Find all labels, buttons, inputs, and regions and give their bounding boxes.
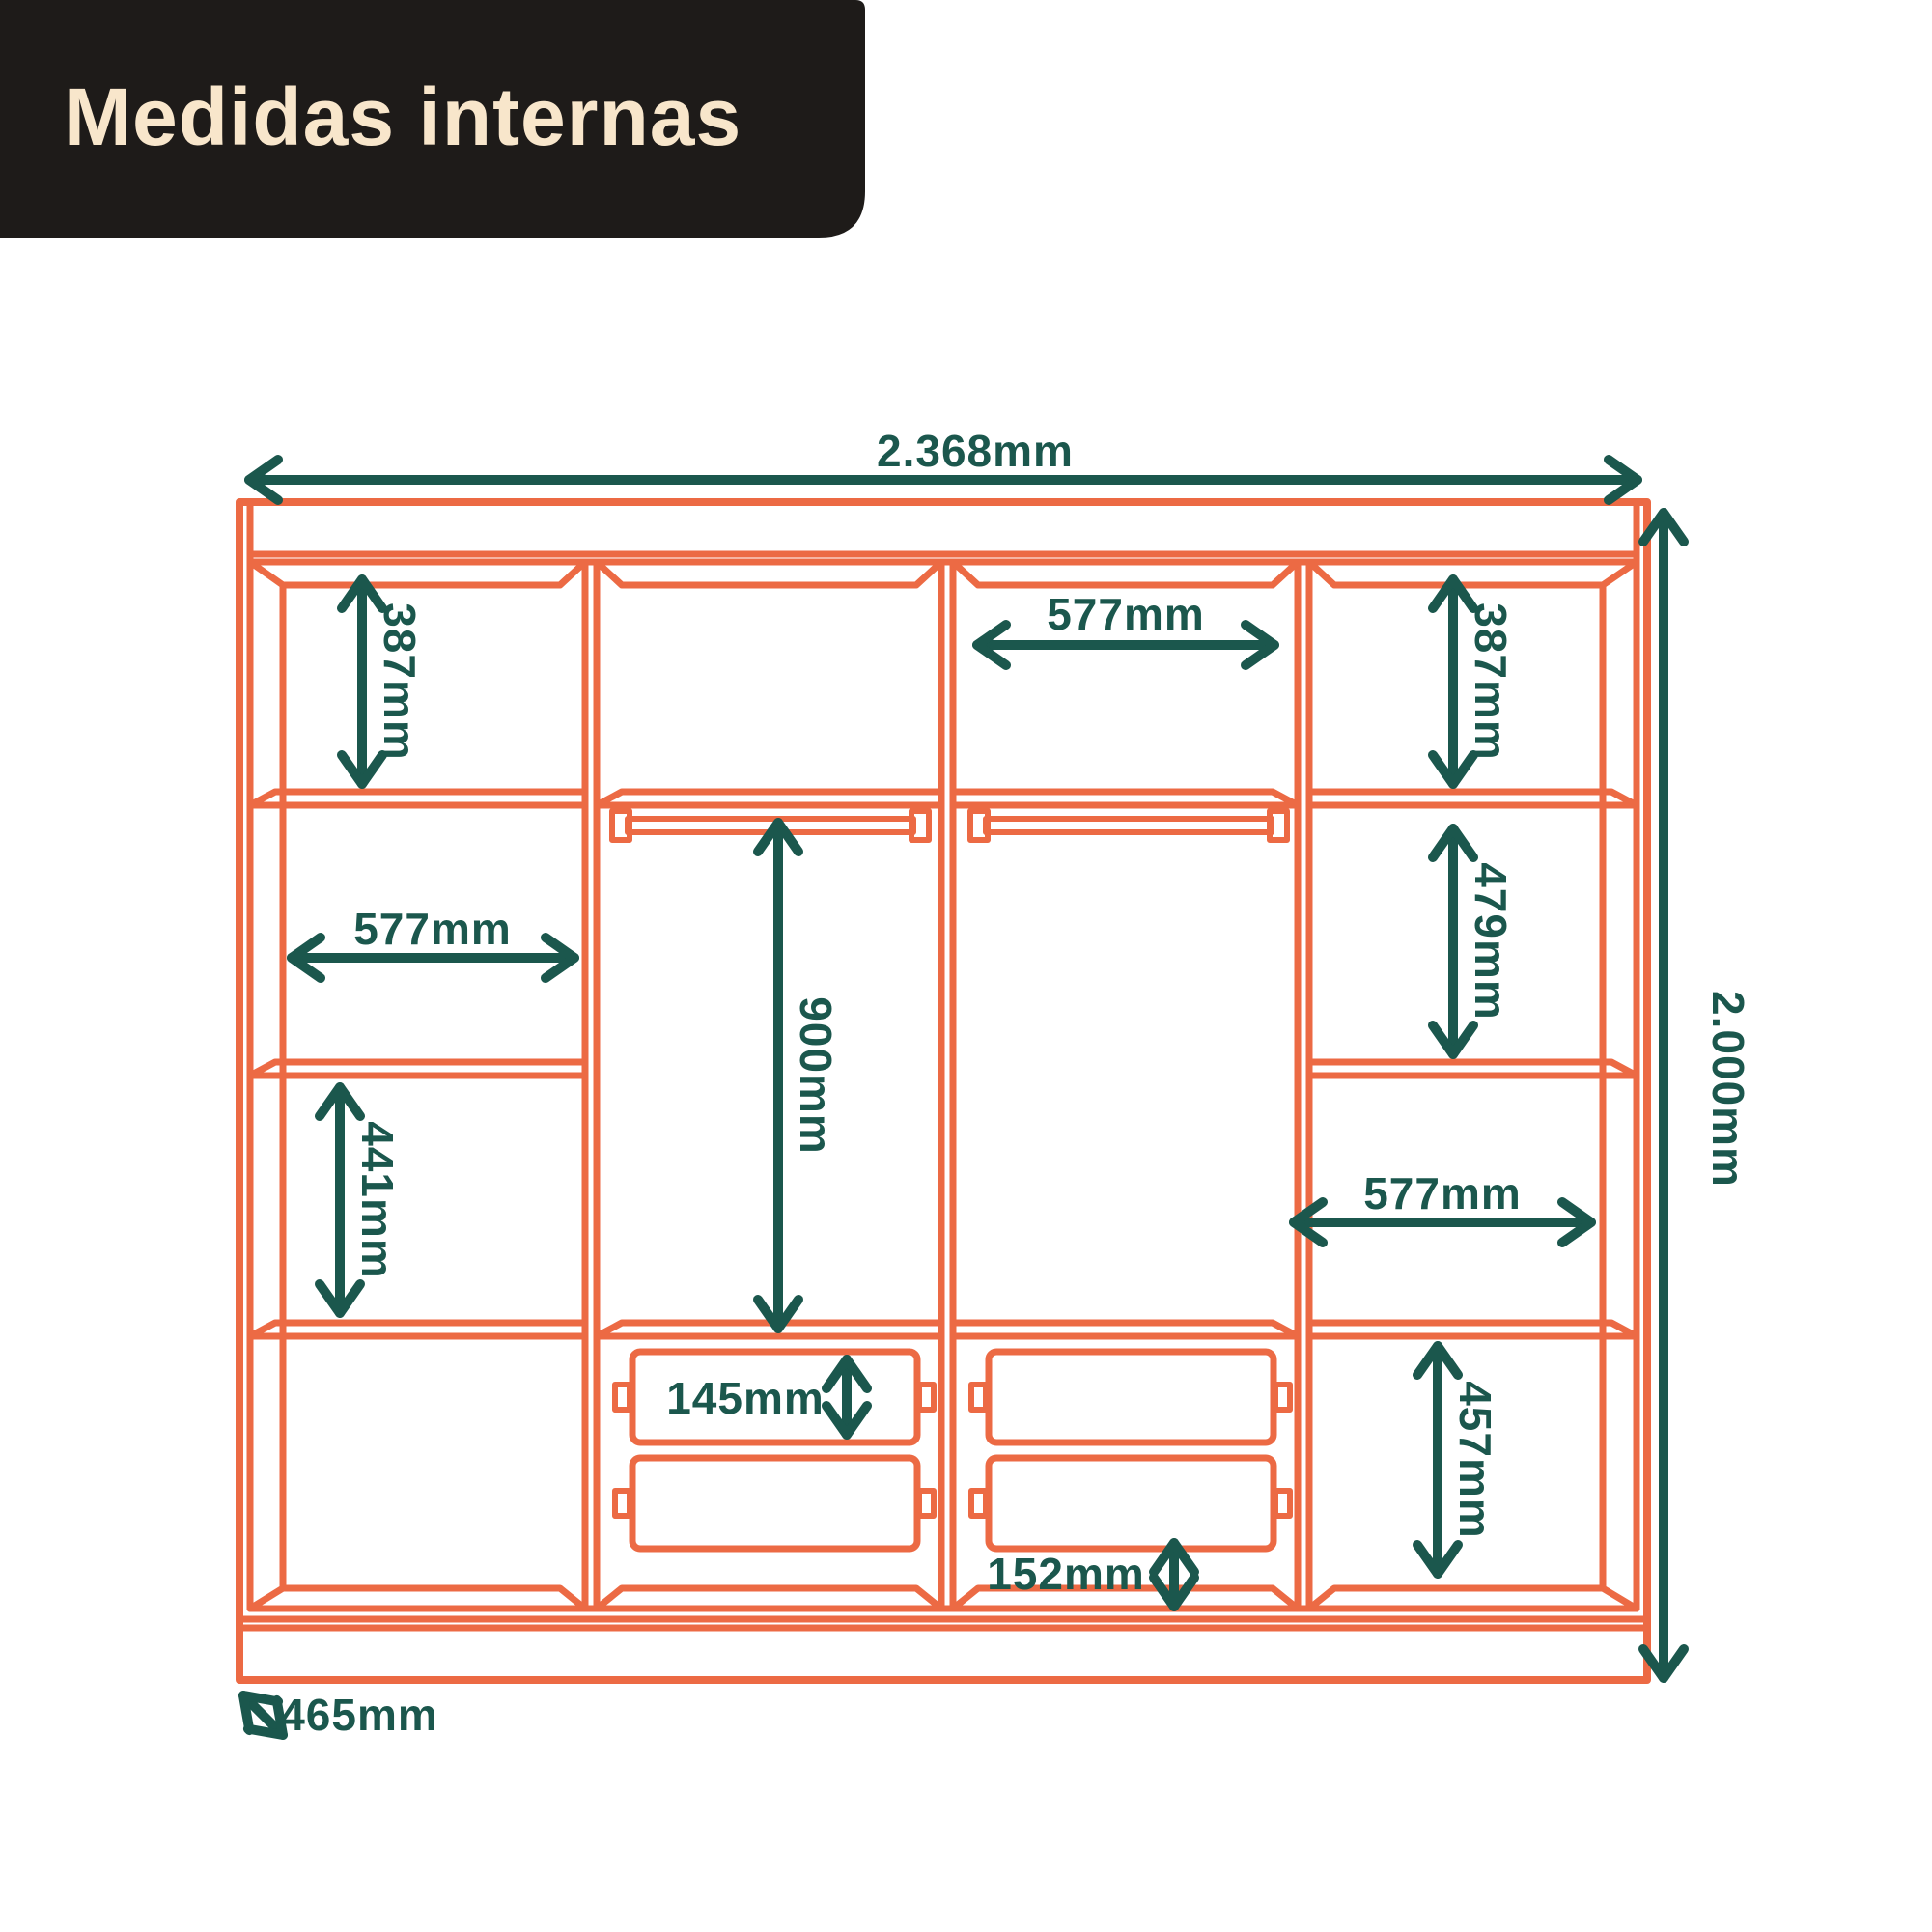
dim-hanging-height-label: 900mm <box>791 996 841 1155</box>
dim-col1-mid-width-label: 577mm <box>353 904 512 954</box>
dim-col4-lower-height-label: 457mm <box>1450 1381 1500 1539</box>
dim-col1-lower-height-label: 441mm <box>352 1121 403 1279</box>
dim-col1-top-height-label: 387mm <box>375 602 425 761</box>
wardrobe-dividers <box>585 562 1309 1609</box>
wardrobe-plinth <box>239 1609 1647 1628</box>
dim-arrow-depth-465 <box>243 1695 283 1735</box>
title-panel: Medidas internas <box>0 0 865 238</box>
hanging-rod-right <box>970 811 1287 840</box>
page-title: Medidas internas <box>64 71 742 162</box>
dim-col3-top-width-label: 577mm <box>1047 589 1205 639</box>
dim-bottom-gap-label: 152mm <box>987 1549 1145 1599</box>
drawer-left-2 <box>632 1458 917 1549</box>
drawer-right-1 <box>989 1352 1274 1442</box>
wardrobe-dimension-drawing: 2.368mm 2.000mm 387mm 577mm 387mm 479mm … <box>0 0 1932 1932</box>
dim-col4-upper-height-label: 479mm <box>1466 862 1516 1021</box>
dim-depth-label: 465mm <box>280 1690 438 1740</box>
wardrobe-left-wall <box>250 562 283 1609</box>
dim-col4-mid-width-label: 577mm <box>1363 1168 1522 1218</box>
dim-total-width-label: 2.368mm <box>877 426 1074 476</box>
dim-arrow-drawer-145 <box>826 1359 867 1435</box>
dim-total-height-label: 2.000mm <box>1703 991 1753 1188</box>
dim-arrow-gap-152 <box>1154 1543 1194 1607</box>
wardrobe-right-wall <box>1603 562 1637 1609</box>
wardrobe-cornice <box>250 502 1637 562</box>
drawer-right-2 <box>989 1458 1274 1549</box>
dim-drawer-height-label: 145mm <box>666 1373 825 1423</box>
medidas-internas-page: 2.368mm 2.000mm 387mm 577mm 387mm 479mm … <box>0 0 1932 1932</box>
dim-col4-top-height-label: 387mm <box>1466 602 1516 761</box>
dimension-labels: 2.368mm 2.000mm 387mm 577mm 387mm 479mm … <box>280 426 1753 1740</box>
